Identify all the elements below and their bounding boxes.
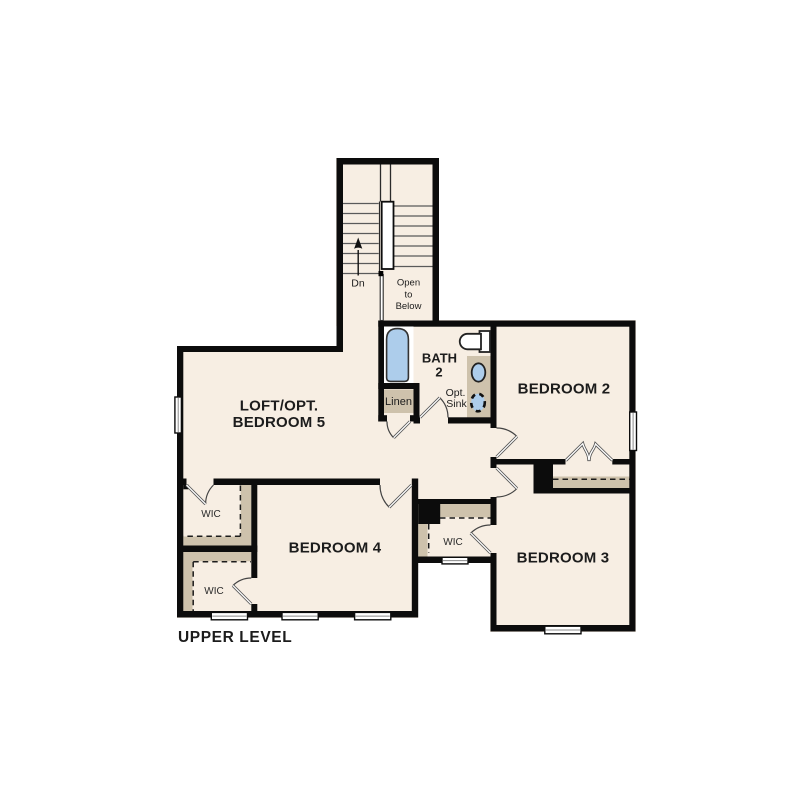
svg-text:Sink: Sink [446, 398, 467, 410]
svg-text:to: to [405, 290, 413, 301]
svg-text:LOFT/OPT.: LOFT/OPT. [240, 398, 318, 415]
svg-text:Linen: Linen [385, 396, 412, 408]
svg-text:Dn: Dn [351, 278, 365, 290]
svg-text:BEDROOM 4: BEDROOM 4 [289, 540, 382, 557]
svg-text:BATH: BATH [422, 351, 457, 366]
svg-text:Open: Open [397, 278, 420, 289]
svg-text:UPPER LEVEL: UPPER LEVEL [178, 629, 292, 646]
svg-text:BEDROOM 2: BEDROOM 2 [518, 381, 611, 398]
svg-text:WIC: WIC [204, 586, 223, 597]
svg-text:BEDROOM 5: BEDROOM 5 [233, 414, 326, 431]
svg-text:WIC: WIC [443, 537, 462, 548]
svg-text:Below: Below [396, 301, 422, 312]
svg-text:BEDROOM 3: BEDROOM 3 [517, 550, 610, 567]
svg-text:2: 2 [435, 365, 442, 380]
svg-text:WIC: WIC [201, 509, 220, 520]
